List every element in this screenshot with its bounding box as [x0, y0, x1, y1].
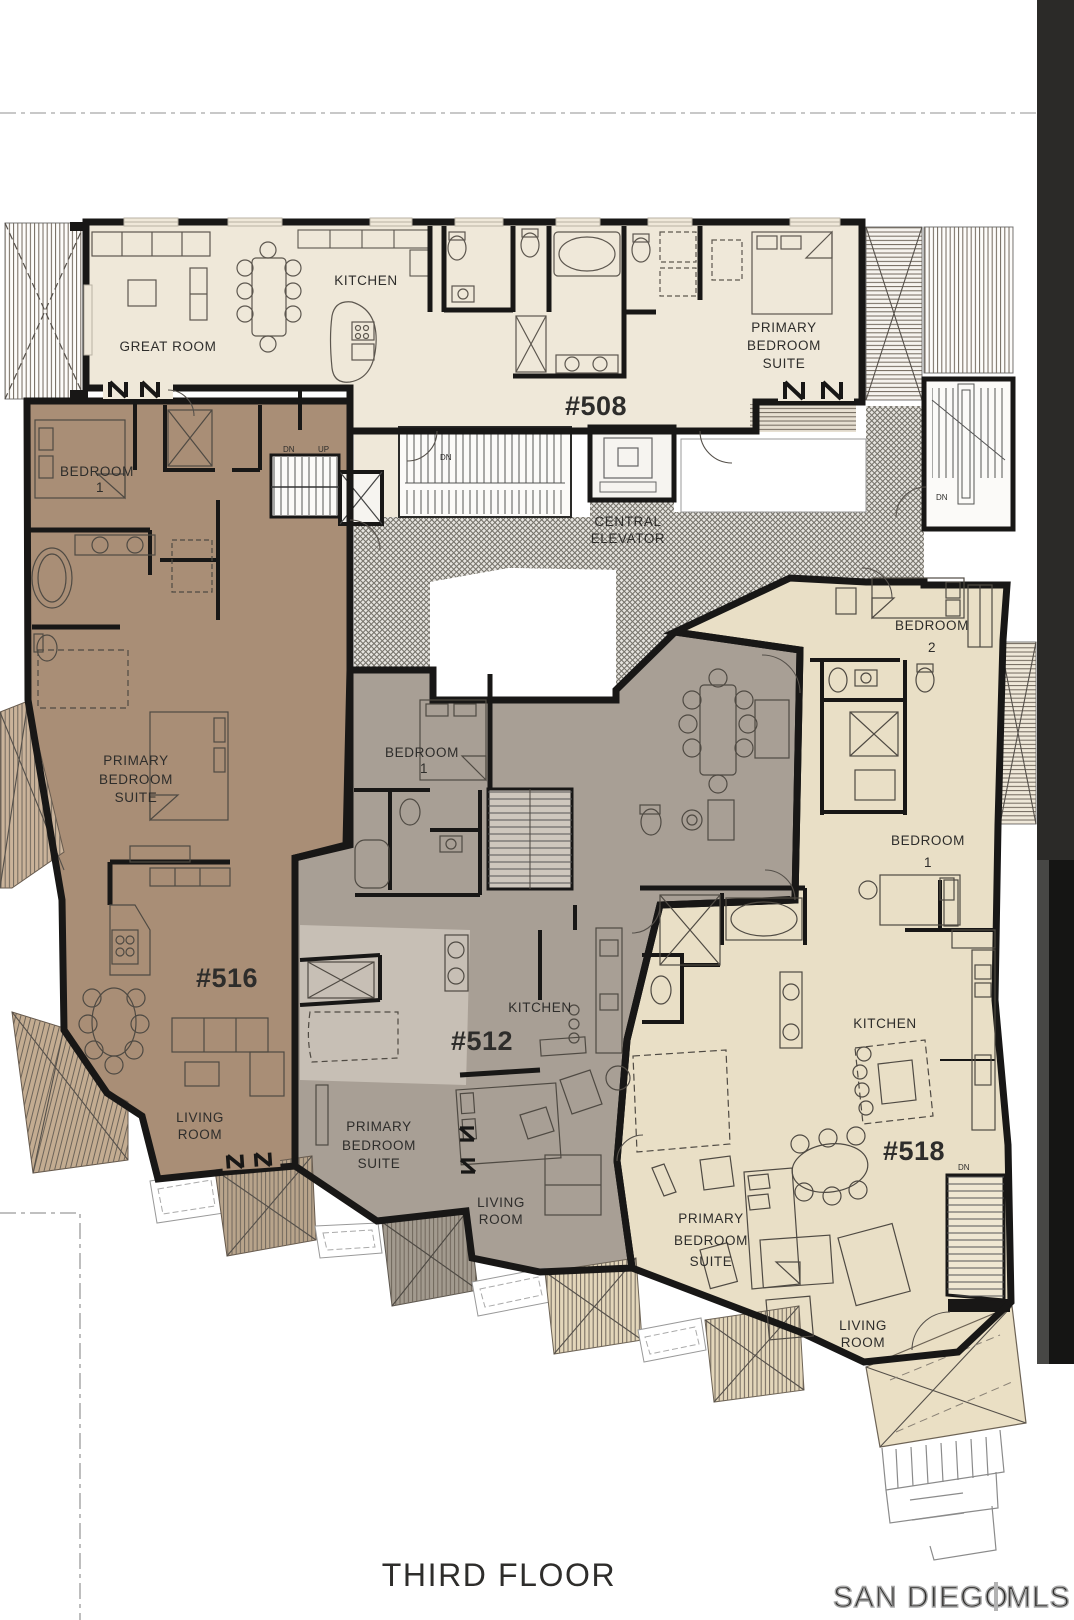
svg-text:KITCHEN: KITCHEN: [508, 1000, 571, 1015]
svg-text:DN: DN: [936, 493, 948, 502]
svg-text:ROOM: ROOM: [178, 1127, 222, 1142]
svg-text:SAN DIEGO: SAN DIEGO: [833, 1581, 1009, 1614]
svg-text:BEDROOM: BEDROOM: [385, 745, 459, 760]
svg-text:SUITE: SUITE: [115, 790, 158, 805]
svg-text:PRIMARY: PRIMARY: [678, 1211, 743, 1226]
svg-text:BEDROOM: BEDROOM: [895, 618, 969, 633]
svg-text:1: 1: [924, 855, 932, 870]
svg-text:2: 2: [928, 640, 936, 655]
svg-text:#518: #518: [883, 1136, 945, 1166]
svg-text:LIVING: LIVING: [839, 1318, 887, 1333]
svg-text:1: 1: [96, 480, 104, 495]
svg-text:KITCHEN: KITCHEN: [334, 273, 397, 288]
svg-text:SUITE: SUITE: [358, 1156, 401, 1171]
svg-text:ROOM: ROOM: [841, 1335, 885, 1350]
svg-text:#516: #516: [196, 963, 258, 993]
svg-text:BEDROOM: BEDROOM: [60, 464, 134, 479]
svg-text:CENTRAL: CENTRAL: [594, 514, 661, 529]
svg-text:GREAT ROOM: GREAT ROOM: [119, 339, 216, 354]
svg-text:ELEVATOR: ELEVATOR: [591, 531, 666, 546]
svg-text:THIRD FLOOR: THIRD FLOOR: [382, 1557, 617, 1593]
svg-text:DN: DN: [283, 445, 295, 454]
svg-text:BEDROOM: BEDROOM: [342, 1138, 416, 1153]
svg-text:PRIMARY: PRIMARY: [103, 753, 168, 768]
svg-text:#512: #512: [451, 1026, 513, 1056]
svg-text:LIVING: LIVING: [176, 1110, 224, 1125]
svg-text:UP: UP: [318, 445, 329, 454]
svg-text:BEDROOM: BEDROOM: [747, 338, 821, 353]
svg-text:DN: DN: [958, 1163, 970, 1172]
svg-text:BEDROOM: BEDROOM: [99, 772, 173, 787]
svg-text:LIVING: LIVING: [477, 1195, 525, 1210]
svg-text:1: 1: [420, 761, 428, 776]
svg-text:BEDROOM: BEDROOM: [674, 1233, 748, 1248]
svg-text:PRIMARY: PRIMARY: [751, 320, 816, 335]
svg-text:SUITE: SUITE: [763, 356, 806, 371]
svg-text:BEDROOM: BEDROOM: [891, 833, 965, 848]
svg-text:MLS: MLS: [1006, 1581, 1071, 1614]
svg-text:DN: DN: [440, 453, 452, 462]
svg-text:#508: #508: [565, 391, 627, 421]
svg-text:KITCHEN: KITCHEN: [853, 1016, 916, 1031]
svg-text:SUITE: SUITE: [690, 1254, 733, 1269]
svg-text:PRIMARY: PRIMARY: [346, 1119, 411, 1134]
svg-text:ROOM: ROOM: [479, 1212, 523, 1227]
